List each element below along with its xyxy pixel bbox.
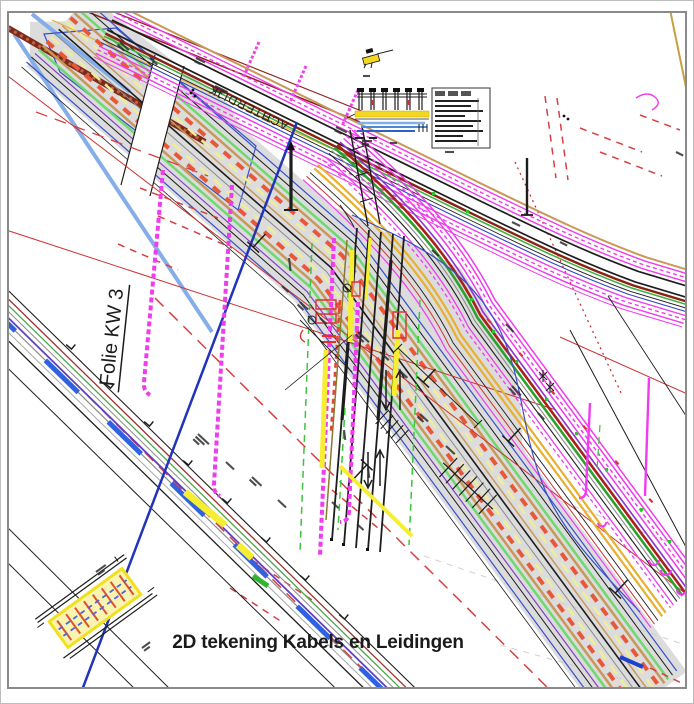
duct-block-detail xyxy=(30,548,158,663)
folie-kw3-label: Folie KW 3 xyxy=(96,288,128,388)
cable-end-curl xyxy=(636,94,658,110)
magenta-stubs xyxy=(579,378,649,498)
red-survey-line xyxy=(560,337,694,397)
cable-marker-symbol xyxy=(362,48,393,68)
black-line xyxy=(608,296,694,428)
folie-kw3-label-group: Folie KW 3 xyxy=(95,283,129,393)
drawing-title-label: 2D tekening Kabels en Leidingen xyxy=(172,632,464,653)
notes-inset xyxy=(432,88,490,148)
khaki-line xyxy=(668,0,687,92)
utilities-cad-drawing: Folie KW 3 ACHTERDIJK 2D tekening Kabels… xyxy=(0,0,694,704)
pile-hatches xyxy=(357,88,424,110)
yellow-bar xyxy=(355,111,429,117)
cross-section-inset xyxy=(347,88,429,139)
